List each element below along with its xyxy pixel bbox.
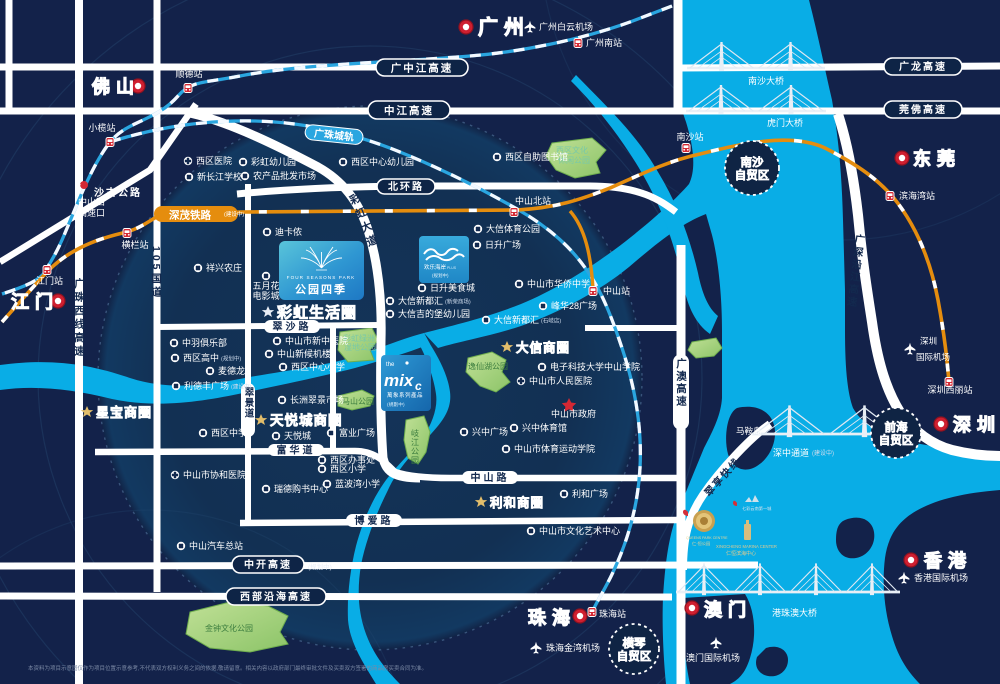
svg-text:广州白云机场: 广州白云机场 bbox=[539, 21, 593, 32]
svg-text:(石岐店): (石岐店) bbox=[541, 317, 561, 325]
svg-text:香港: 香港 bbox=[923, 551, 972, 571]
svg-text:PLUS: PLUS bbox=[447, 266, 457, 270]
svg-text:博爱路: 博爱路 bbox=[355, 514, 394, 527]
svg-text:江门: 江门 bbox=[11, 291, 59, 312]
svg-text:西区中心幼儿园: 西区中心幼儿园 bbox=[351, 156, 414, 167]
svg-text:翠沙路: 翠沙路 bbox=[273, 320, 312, 333]
svg-text:c: c bbox=[415, 379, 422, 393]
svg-text:大信吉的堡幼儿园: 大信吉的堡幼儿园 bbox=[398, 308, 470, 319]
svg-text:仁恒滨海中心: 仁恒滨海中心 bbox=[726, 550, 756, 557]
svg-text:中山汽车总站: 中山汽车总站 bbox=[189, 540, 243, 551]
svg-text:澳门国际机场: 澳门国际机场 bbox=[686, 652, 740, 663]
svg-text:日升美食城: 日升美食城 bbox=[430, 282, 475, 293]
svg-text:(建设中): (建设中) bbox=[812, 449, 834, 457]
svg-text:瑞德购书中心: 瑞德购书中心 bbox=[274, 483, 328, 494]
svg-text:深圳西丽站: 深圳西丽站 bbox=[927, 384, 972, 395]
svg-text:澳门: 澳门 bbox=[704, 599, 752, 620]
svg-text:(建设中): (建设中) bbox=[231, 383, 251, 391]
svg-text:蓝波湾小学: 蓝波湾小学 bbox=[335, 478, 380, 489]
svg-text:麦德龙: 麦德龙 bbox=[218, 365, 245, 376]
svg-text:南沙: 南沙 bbox=[741, 155, 764, 169]
svg-text:中山北站: 中山北站 bbox=[515, 195, 551, 206]
svg-text:西区自助图书馆: 西区自助图书馆 bbox=[505, 151, 568, 162]
svg-text:中山市协和医院: 中山市协和医院 bbox=[183, 469, 246, 480]
svg-text:深中通道: 深中通道 bbox=[773, 447, 809, 458]
svg-text:深圳: 深圳 bbox=[953, 414, 1000, 435]
svg-text:广龙高速: 广龙高速 bbox=[899, 60, 947, 73]
svg-text:(建设中): (建设中) bbox=[224, 210, 244, 218]
svg-text:星宝商圈: 星宝商圈 bbox=[96, 405, 152, 420]
svg-text:日升广场: 日升广场 bbox=[485, 239, 521, 250]
svg-text:大信新都汇: 大信新都汇 bbox=[398, 295, 443, 306]
svg-text:南沙站: 南沙站 bbox=[676, 131, 703, 142]
svg-text:西区中心小学: 西区中心小学 bbox=[291, 361, 345, 372]
svg-text:江门站: 江门站 bbox=[36, 275, 63, 286]
svg-text:中山市人民医院: 中山市人民医院 bbox=[529, 375, 592, 386]
svg-text:马山公园: 马山公园 bbox=[342, 396, 374, 406]
svg-text:珠海: 珠海 bbox=[528, 607, 576, 628]
svg-text:横栏站: 横栏站 bbox=[121, 239, 148, 250]
svg-text:天悦城: 天悦城 bbox=[284, 430, 311, 441]
svg-text:前海: 前海 bbox=[885, 420, 908, 434]
svg-text:新长江学校: 新长江学校 bbox=[197, 171, 242, 182]
svg-text:西部沿海高速: 西部沿海高速 bbox=[240, 590, 312, 603]
svg-text:本资料为项目示意图仅作为项目位置示意参考,不代表双方权利义务: 本资料为项目示意图仅作为项目位置示意参考,不代表双方权利义务之间的依据,敬请留意… bbox=[28, 664, 427, 672]
svg-text:利德丰广场: 利德丰广场 bbox=[184, 380, 229, 391]
svg-text:滨海湾站: 滨海湾站 bbox=[899, 190, 935, 201]
svg-text:自贸区: 自贸区 bbox=[617, 649, 652, 663]
svg-text:中山西: 中山西 bbox=[78, 196, 105, 207]
svg-text:横琴: 横琴 bbox=[623, 636, 646, 650]
svg-text:珠海金湾机场: 珠海金湾机场 bbox=[546, 642, 600, 653]
svg-text:峰华28广场: 峰华28广场 bbox=[551, 300, 597, 311]
svg-text:公园四季: 公园四季 bbox=[295, 282, 347, 296]
svg-text:the: the bbox=[386, 362, 395, 368]
svg-text:农产品批发市场: 农产品批发市场 bbox=[253, 170, 316, 181]
svg-text:莞佛高速: 莞佛高速 bbox=[899, 103, 947, 116]
svg-text:萬象系列產品: 萬象系列產品 bbox=[387, 391, 423, 399]
svg-text:西区医院: 西区医院 bbox=[196, 155, 232, 166]
svg-text:国际机场: 国际机场 bbox=[916, 352, 950, 362]
svg-text:欢乐海岸: 欢乐海岸 bbox=[424, 263, 447, 271]
svg-text:大信商圈: 大信商圈 bbox=[516, 340, 570, 355]
svg-text:中山市体育运动学院: 中山市体育运动学院 bbox=[514, 443, 595, 454]
svg-text:(新荣商场): (新荣商场) bbox=[445, 298, 471, 306]
svg-text:深圳: 深圳 bbox=[920, 336, 937, 346]
svg-text:中山路: 中山路 bbox=[471, 471, 510, 484]
svg-text:电子科技大学中山学院: 电子科技大学中山学院 bbox=[550, 361, 640, 372]
svg-text:广澳高速: 广澳高速 bbox=[675, 357, 687, 408]
svg-text:中江高速: 中江高速 bbox=[384, 104, 434, 117]
svg-text:广州: 广州 bbox=[478, 15, 530, 39]
svg-text:西区小学: 西区小学 bbox=[330, 463, 366, 474]
svg-text:岐江公园: 岐江公园 bbox=[411, 428, 420, 465]
svg-text:中山市文化艺术中心: 中山市文化艺术中心 bbox=[539, 525, 620, 536]
svg-text:中山新候机楼: 中山新候机楼 bbox=[277, 348, 331, 359]
svg-text:北环路: 北环路 bbox=[388, 180, 424, 193]
svg-text:中羽俱乐部: 中羽俱乐部 bbox=[182, 337, 227, 348]
svg-text:mix: mix bbox=[384, 371, 415, 390]
svg-text:大信体育公园: 大信体育公园 bbox=[486, 223, 540, 234]
svg-text:南沙大桥: 南沙大桥 bbox=[748, 75, 784, 86]
svg-text:西区高中: 西区高中 bbox=[183, 352, 219, 363]
svg-text:马鞍岛: 马鞍岛 bbox=[736, 426, 762, 436]
svg-text:长洲翠景市场: 长洲翠景市场 bbox=[290, 394, 344, 405]
svg-text:自贸区: 自贸区 bbox=[735, 168, 770, 182]
svg-text:中山市华侨中学: 中山市华侨中学 bbox=[527, 278, 590, 289]
svg-text:东莞: 东莞 bbox=[913, 148, 961, 169]
svg-text:利和广场: 利和广场 bbox=[572, 488, 608, 499]
svg-text:105国道: 105国道 bbox=[150, 246, 162, 300]
svg-text:广州南站: 广州南站 bbox=[586, 37, 622, 48]
svg-text:天悦城商圈: 天悦城商圈 bbox=[270, 412, 343, 428]
svg-text:五月花: 五月花 bbox=[252, 280, 279, 291]
svg-text:小榄站: 小榄站 bbox=[88, 122, 115, 133]
svg-text:祥兴农庄: 祥兴农庄 bbox=[206, 262, 242, 273]
svg-text:(规划中): (规划中) bbox=[432, 272, 449, 279]
svg-text:(規劃中): (規劃中) bbox=[387, 401, 405, 408]
svg-text:香港国际机场: 香港国际机场 bbox=[914, 572, 968, 583]
svg-text:兴中体育馆: 兴中体育馆 bbox=[522, 422, 567, 433]
svg-text:金钟文化公园: 金钟文化公园 bbox=[205, 623, 253, 633]
svg-text:自贸区: 自贸区 bbox=[879, 433, 914, 447]
svg-text:FOUR SEASONS PARK: FOUR SEASONS PARK bbox=[287, 275, 356, 280]
svg-text:大信新都汇: 大信新都汇 bbox=[494, 314, 539, 325]
svg-text:中山市政府: 中山市政府 bbox=[551, 408, 596, 419]
svg-text:高速口: 高速口 bbox=[78, 207, 105, 218]
svg-text:兴中广场: 兴中广场 bbox=[472, 426, 508, 437]
svg-text:富华道: 富华道 bbox=[277, 444, 316, 457]
svg-text:珠海站: 珠海站 bbox=[599, 608, 626, 619]
svg-text:富业广场: 富业广场 bbox=[339, 427, 375, 438]
svg-text:深茂铁路: 深茂铁路 bbox=[169, 209, 211, 222]
svg-text:虎门大桥: 虎门大桥 bbox=[767, 117, 803, 128]
svg-text:(规划中): (规划中) bbox=[221, 355, 241, 363]
svg-text:七彩云南第一城: 七彩云南第一城 bbox=[742, 505, 772, 512]
svg-text:中开高速: 中开高速 bbox=[244, 558, 292, 571]
svg-text:彩虹幼儿园: 彩虹幼儿园 bbox=[251, 156, 296, 167]
svg-text:(规划中): (规划中) bbox=[308, 562, 332, 571]
svg-text:西区中学: 西区中学 bbox=[211, 427, 247, 438]
svg-text:仁·恒公园: 仁·恒公园 bbox=[692, 540, 710, 547]
svg-text:港珠澳大桥: 港珠澳大桥 bbox=[772, 607, 817, 618]
svg-text:电影城: 电影城 bbox=[252, 290, 279, 301]
svg-text:QUEENS PARK CENTRE: QUEENS PARK CENTRE bbox=[686, 536, 728, 540]
svg-text:中山站: 中山站 bbox=[603, 285, 630, 296]
svg-text:广中江高速: 广中江高速 bbox=[391, 61, 454, 74]
svg-text:中山市新中医院: 中山市新中医院 bbox=[285, 335, 348, 346]
svg-text:彩虹生活圈: 彩虹生活圈 bbox=[276, 304, 357, 322]
svg-text:利和商圈: 利和商圈 bbox=[490, 495, 544, 510]
svg-text:迪卡侬: 迪卡侬 bbox=[275, 226, 302, 237]
svg-text:湿地公园: 湿地公园 bbox=[344, 342, 376, 352]
svg-text:翠景道: 翠景道 bbox=[243, 387, 256, 419]
svg-text:XINGCHENG MARINA CENTER: XINGCHENG MARINA CENTER bbox=[716, 544, 777, 549]
svg-text:逸仙湖公园: 逸仙湖公园 bbox=[468, 361, 508, 371]
svg-text:顺德站: 顺德站 bbox=[175, 68, 202, 79]
svg-text:广珠西线高速: 广珠西线高速 bbox=[73, 277, 85, 359]
svg-text:佛山: 佛山 bbox=[91, 76, 140, 97]
